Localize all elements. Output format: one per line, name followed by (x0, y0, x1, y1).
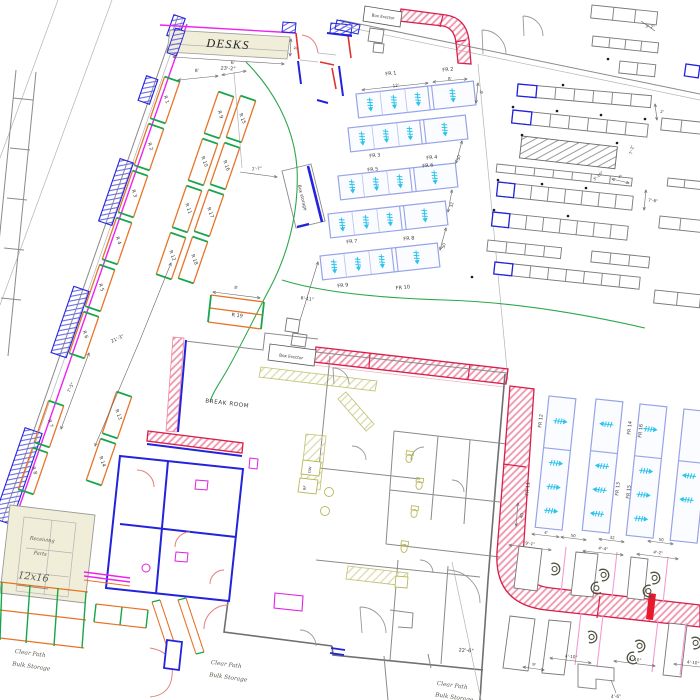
dim-fr-50b: 50 (441, 242, 447, 249)
rack-label-fr1: FR 1 (385, 70, 397, 77)
dim-gap-6-11: 6'-11" (300, 295, 314, 303)
person-icon (599, 568, 610, 581)
receiving-area: Receiving Parts 12x16 (0, 505, 95, 603)
dim-ws-4-4: 4'-4" (598, 545, 609, 551)
rack-label-r2: R 2 (146, 142, 154, 151)
rack-label-fr6: FR 6 (422, 162, 434, 169)
floorplan-svg: DESKS 23'-2" 5' Box Erector FR 1 FR 2 12… (0, 0, 700, 700)
desks-label: DESKS (205, 36, 250, 52)
dim-left-6: 6' (231, 60, 236, 66)
conveyor-top (399, 9, 471, 64)
rack-label-r19: R 19 (231, 312, 243, 319)
dim-box-storage-offset: 2'-7" (252, 166, 262, 172)
dim-fr-32: 32 (449, 201, 455, 208)
rack-label-r3: R 3 (130, 189, 138, 198)
rack-label-fr13: FR 13 (614, 482, 621, 496)
dim-fr1-length: 12' (392, 83, 399, 89)
flow-racks-top: FR 1 FR 2 12' 8' 6' FR 3 FR 4 FR 5 FR 6 … (320, 66, 484, 291)
rack-label-r5: R 5 (97, 283, 105, 292)
dim-ws-4-2: 4'-2" (653, 549, 664, 555)
floor-grid-lines (0, 0, 112, 356)
dim-aisle-21-3: 21'-3" (110, 333, 125, 344)
box-erector-top: Box Erector (363, 6, 471, 64)
rack-label-r17: R 17 (205, 206, 214, 218)
rack-label-r18: R 18 (189, 253, 198, 265)
rack-label-r4: R 4 (114, 236, 122, 245)
office-core: DW RF BREAK ROOM (166, 333, 507, 700)
rack-label-r11: R 11 (183, 202, 192, 214)
dim-tr-3-2: 3'-2" (645, 24, 655, 30)
rack-label-r12: R 12 (167, 249, 176, 261)
note-clear-path-1a: Clear Path (14, 649, 46, 659)
dim-ws-9: 9' (532, 662, 536, 667)
rack-label-r10: R 10 (199, 155, 208, 167)
rack-label-fr3: FR 3 (369, 152, 381, 159)
rack-label-fr4: FR 4 (426, 154, 438, 161)
wall-panel-icon (138, 76, 158, 104)
dim-r19-8: 8' (234, 285, 238, 290)
dim-ws-4-10b: 4'-10" (629, 656, 642, 662)
toilet-icon (400, 541, 409, 553)
person-icon (650, 571, 660, 584)
rack-label-r15: R 15 (237, 112, 246, 124)
break-room-label: BREAK ROOM (205, 398, 249, 409)
rack-label-fr5: FR 5 (367, 166, 379, 173)
box-erector-mid: Box Erector (259, 318, 508, 391)
person-icon (635, 639, 646, 652)
dim-fx-32: 32 (609, 535, 615, 541)
dim-fr-depth: 6' (479, 89, 485, 94)
rack-rows-top-right: 3'-2" 2' 7'-2" 3'-10" 3' 7'-6" (471, 5, 700, 308)
desks-area: DESKS 23'-2" 5' (160, 25, 298, 72)
dim-ws-9-1: 9'-1" (525, 540, 536, 546)
dim-wall-22-6: 22'-6" (458, 647, 473, 654)
dim-ws-4-10c: 4'-10" (687, 659, 700, 665)
clear-path-notes: Clear Path Bulk Storage Clear Path Bulk … (11, 649, 474, 700)
person-icon (551, 563, 559, 575)
note-clear-path-2b: Bulk Storage (208, 672, 248, 683)
dim-tr-3: 3' (618, 174, 622, 179)
rack-label-fr9: FR 9 (337, 282, 349, 289)
toilet-icon (410, 506, 419, 518)
box-storage: Box storage 2'-7" (234, 72, 325, 228)
person-icon (588, 631, 597, 643)
dim-tr-7-6: 7'-6" (648, 198, 658, 204)
note-clear-path-3b: Bulk Storage (434, 692, 474, 700)
rack-label-fr2: FR 2 (442, 66, 454, 73)
note-clear-path-1b: Bulk Storage (11, 661, 51, 672)
dim-left-8: 8' (195, 68, 200, 74)
rack-r19: R 19 8' (208, 285, 264, 329)
entry-vestibule (282, 22, 352, 103)
dim-tr-7-2: 7'-2" (628, 144, 635, 154)
rack-label-r14: R 14 (97, 455, 106, 467)
door-arc (523, 16, 543, 36)
rack-label-fr10: FR 10 (395, 284, 410, 291)
dim-fr-50a: 50 (456, 154, 462, 161)
rack-label-r6: R 6 (81, 330, 89, 339)
rack-label-r16: R 16 (221, 159, 230, 171)
refrigerator-label: RF (303, 485, 308, 490)
dim-tr-2: 2' (660, 109, 664, 114)
rack-label-fr12: FR 12 (537, 414, 544, 428)
rack-label-fr8: FR 8 (403, 235, 415, 242)
toilet-icon (405, 451, 414, 463)
locker-suite (106, 431, 303, 697)
rack-label-r9: R 9 (216, 110, 224, 119)
rack-label-r13: R 13 (113, 408, 122, 420)
rack-label-r1: R 1 (162, 95, 170, 104)
person-icon (691, 636, 700, 649)
dim-fr2-length: 8' (448, 76, 452, 81)
note-clear-path-3a: Clear Path (436, 681, 468, 691)
note-clear-path-2a: Clear Path (210, 660, 242, 670)
dim-desks-length: 23'-2" (220, 66, 235, 73)
rack-label-fr14: FR 14 (626, 421, 633, 435)
dim-fx-50b: 50 (658, 537, 664, 543)
flow-racks-right: FR 12 FR 11 FR 14 FR 16 FR 13 FR 15 40 4… (516, 396, 700, 544)
dim-fx-4: 4' (544, 530, 548, 535)
dim-fx-50a: 50 (570, 533, 576, 539)
rack-label-fr7: FR 7 (346, 238, 358, 245)
dim-ws-4-6: 4'-6" (611, 694, 621, 699)
